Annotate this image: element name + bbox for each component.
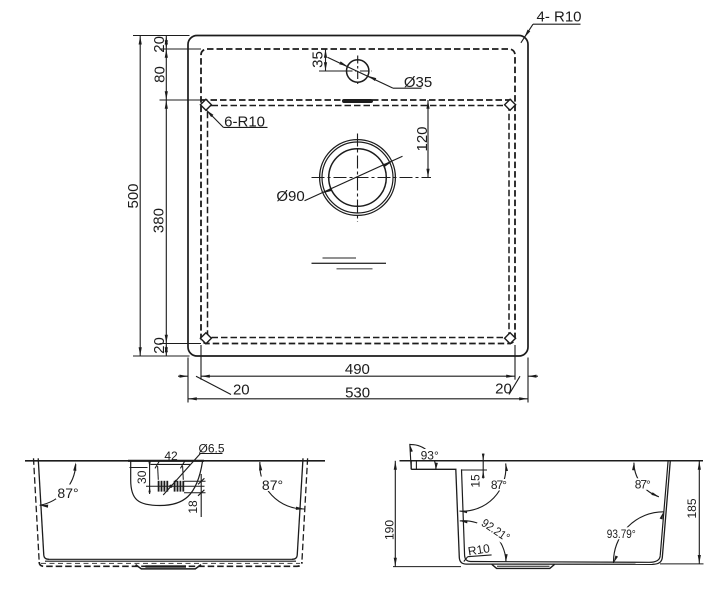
svg-text:Ø6.5: Ø6.5	[198, 441, 224, 455]
svg-text:Ø90: Ø90	[276, 188, 304, 205]
svg-text:30: 30	[135, 470, 149, 484]
svg-text:20: 20	[233, 381, 250, 398]
svg-text:80: 80	[152, 66, 169, 83]
svg-text:490: 490	[345, 361, 370, 378]
svg-text:Ø35: Ø35	[404, 74, 432, 91]
svg-text:530: 530	[345, 384, 370, 401]
svg-text:15: 15	[468, 474, 482, 488]
svg-text:185: 185	[685, 498, 699, 518]
svg-text:87°: 87°	[262, 477, 283, 493]
svg-text:87°: 87°	[491, 478, 507, 492]
svg-text:20: 20	[151, 36, 168, 53]
svg-text:93°: 93°	[421, 448, 439, 462]
svg-text:190: 190	[382, 520, 396, 540]
svg-text:87°: 87°	[635, 477, 651, 491]
svg-text:18: 18	[186, 500, 200, 514]
svg-text:120: 120	[414, 126, 431, 151]
svg-text:6-R10: 6-R10	[224, 113, 265, 130]
svg-text:500: 500	[125, 183, 142, 208]
svg-text:93.79°: 93.79°	[607, 527, 636, 541]
svg-text:20: 20	[151, 337, 168, 354]
svg-text:87°: 87°	[57, 485, 78, 501]
svg-text:4- R10: 4- R10	[536, 9, 581, 26]
svg-text:35: 35	[310, 51, 327, 68]
svg-text:380: 380	[150, 208, 167, 233]
svg-text:20: 20	[495, 381, 512, 398]
svg-text:42: 42	[164, 449, 178, 463]
